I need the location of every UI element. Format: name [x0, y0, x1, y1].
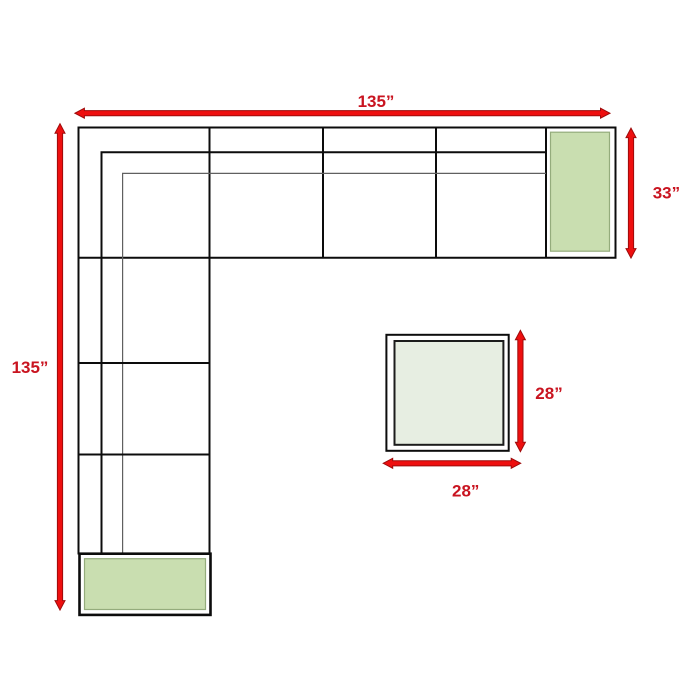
svg-text:33”: 33”	[653, 183, 680, 202]
svg-text:28”: 28”	[535, 384, 562, 403]
svg-text:135”: 135”	[12, 358, 49, 377]
svg-text:135”: 135”	[358, 92, 395, 111]
svg-text:28”: 28”	[452, 482, 479, 501]
